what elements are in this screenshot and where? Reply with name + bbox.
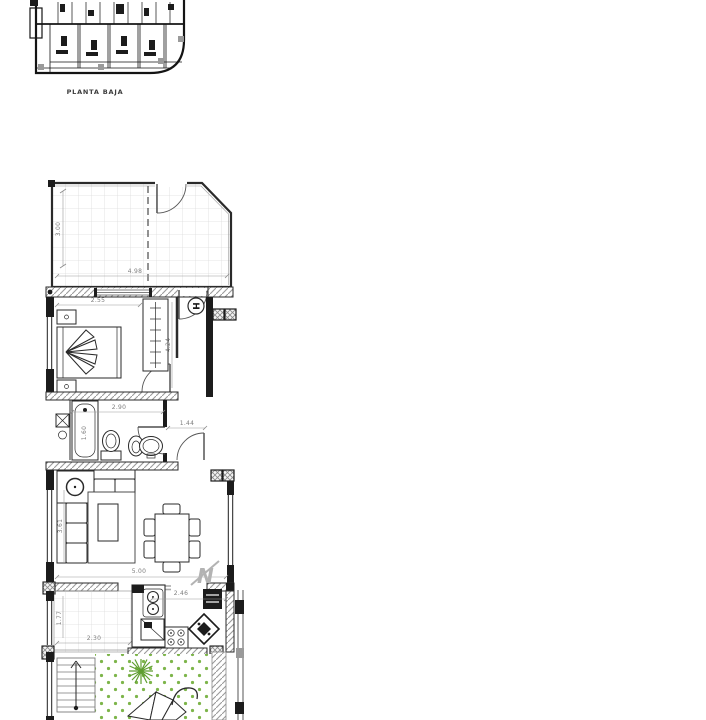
living-side-window-left <box>47 490 51 562</box>
bathtub-dimension: 1.60 <box>81 426 88 441</box>
bedroom: 2.55 4.24 <box>46 297 236 397</box>
bedroom-side-window <box>47 317 51 369</box>
svg-text:2.55: 2.55 <box>91 297 106 304</box>
floor-plan-drawing: PLANTA BAJA 3.00 4.98 <box>0 0 706 720</box>
washbasin-icon <box>140 437 163 459</box>
site-plan-drawing <box>30 0 184 73</box>
north-label: N <box>197 564 214 588</box>
hall-width-dimension: 1.44 <box>166 420 207 430</box>
svg-text:4.98: 4.98 <box>128 268 143 275</box>
nightstand-icon <box>57 380 76 393</box>
column <box>225 309 236 320</box>
entrance-label-badge: H <box>188 298 204 314</box>
svg-text:1.77: 1.77 <box>56 611 63 626</box>
terrace-corner-post <box>48 180 55 187</box>
toilet-icon <box>101 431 121 461</box>
column <box>223 470 234 481</box>
patio: 1.77 2.30 <box>54 591 132 652</box>
svg-text:1.44: 1.44 <box>180 420 195 427</box>
bed-icon <box>57 327 121 378</box>
stove-icon <box>165 627 188 648</box>
entrance-label: H <box>190 302 200 310</box>
svg-text:3.00: 3.00 <box>55 222 62 237</box>
washing-machine-icon <box>141 619 164 640</box>
column <box>213 309 224 320</box>
hall-living-door <box>177 433 204 460</box>
living-side-window-right <box>228 495 232 565</box>
water-heater-icon <box>56 414 69 439</box>
bathroom: 1.60 2.90 <box>56 400 167 462</box>
terrace: 3.00 4.98 <box>48 180 231 287</box>
hallway: 1.44 <box>166 420 207 460</box>
svg-text:5.00: 5.00 <box>132 568 147 575</box>
svg-text:4.24: 4.24 <box>165 338 172 353</box>
svg-text:2.46: 2.46 <box>174 590 189 597</box>
bathroom-living-wall <box>46 462 178 470</box>
svg-text:3.61: 3.61 <box>57 519 64 534</box>
bathtub-icon: 1.60 <box>72 401 98 460</box>
dining-table-icon <box>144 504 200 572</box>
corner-sink-icon <box>189 614 219 644</box>
floor-plan-page: PLANTA BAJA 3.00 4.98 <box>0 0 706 720</box>
bedroom-bathroom-wall <box>46 392 178 400</box>
coffee-table-icon <box>98 504 118 541</box>
stairs-icon <box>57 658 95 712</box>
column <box>211 470 222 481</box>
nightstand-icon <box>57 310 76 324</box>
wardrobe-icon <box>143 299 168 371</box>
bedroom-width-dimension: 2.55 <box>55 297 142 307</box>
site-plan-title: PLANTA BAJA <box>67 88 124 96</box>
svg-text:2.30: 2.30 <box>87 635 102 642</box>
svg-text:2.90: 2.90 <box>112 404 127 411</box>
